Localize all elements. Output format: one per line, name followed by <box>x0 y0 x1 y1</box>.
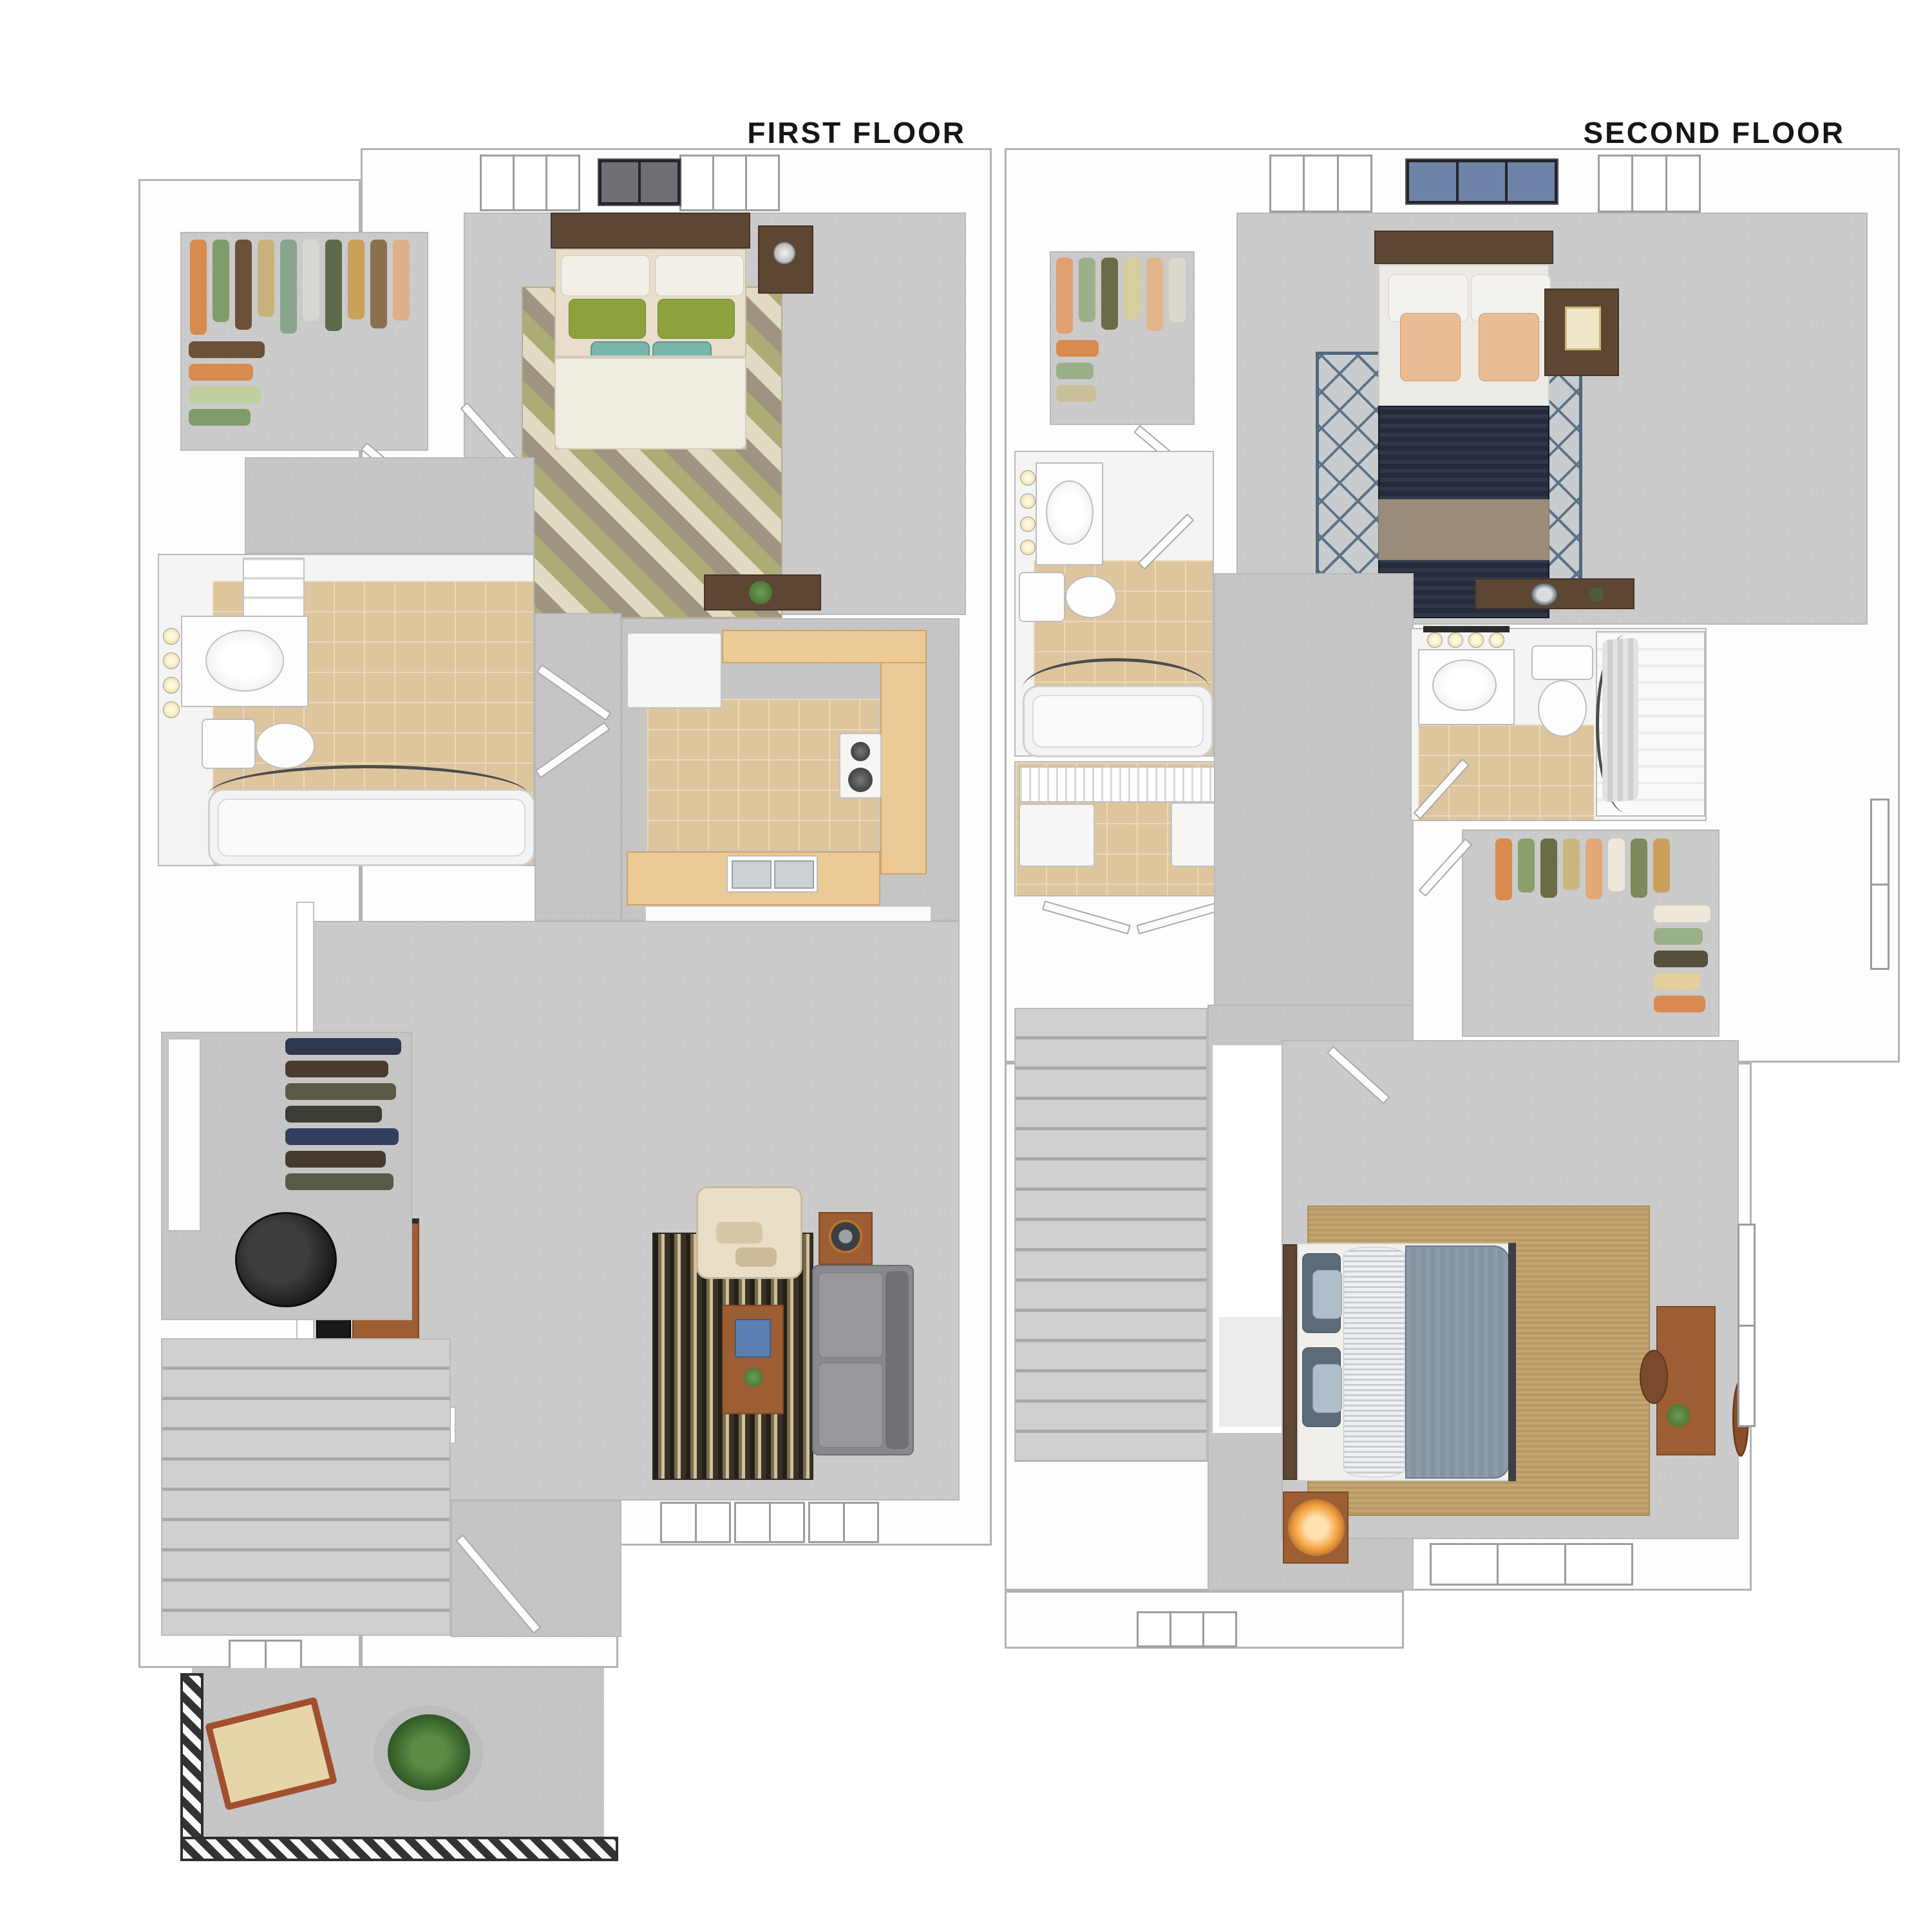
hanging-clothes-icon <box>1056 340 1099 402</box>
staircase <box>161 1338 451 1636</box>
vanity-light-bar <box>1423 626 1510 632</box>
green-pillow <box>658 299 735 339</box>
dresser <box>1475 578 1634 609</box>
vanity-light-icon <box>1020 540 1036 555</box>
window-icon <box>1430 1543 1633 1586</box>
toilet-bowl <box>1065 576 1117 618</box>
folded-sheet <box>1343 1247 1405 1477</box>
vanity-light-icon <box>1020 493 1036 509</box>
wall-art-icon <box>598 158 681 206</box>
washer-icon <box>1019 804 1095 867</box>
window-icon <box>1598 155 1701 213</box>
bed-headboard <box>551 213 750 249</box>
range-stove-icon <box>839 733 882 799</box>
window-icon <box>1738 1224 1756 1427</box>
sink-counter <box>726 855 818 893</box>
vanity-light-icon <box>1489 632 1504 648</box>
vanity-light-icon <box>1427 632 1443 648</box>
pillow <box>561 255 650 296</box>
lamp-icon <box>773 242 795 264</box>
toilet-tank <box>1531 645 1593 680</box>
bathtub <box>208 789 535 866</box>
nightstand <box>1544 289 1619 376</box>
peach-pillow <box>1479 313 1539 381</box>
window-icon <box>808 1502 879 1543</box>
coffee-table <box>722 1305 784 1414</box>
balcony-railing-left <box>180 1673 204 1861</box>
toilet-bowl <box>1538 680 1587 737</box>
bed-duvet <box>554 355 746 450</box>
window-icon <box>480 155 580 211</box>
side-table <box>819 1212 873 1265</box>
bathtub <box>1023 685 1213 757</box>
window-icon <box>1870 799 1889 970</box>
balcony-railing-bottom <box>180 1837 618 1861</box>
tan-blanket <box>1378 499 1549 560</box>
second-floor-plan <box>1005 148 1900 1649</box>
balcony <box>180 1668 618 1868</box>
floor-plan-canvas: FIRST FLOOR SECOND FLOOR <box>0 0 1932 1932</box>
counter-right <box>880 662 927 875</box>
vanity-light-icon <box>1020 516 1036 532</box>
vanity-light-icon <box>1468 632 1484 648</box>
window-icon <box>660 1502 731 1543</box>
toilet-tank <box>202 719 256 769</box>
hanging-clothes-icon <box>189 341 265 426</box>
green-pillow <box>569 299 646 339</box>
wall-art-icon <box>1405 158 1558 205</box>
bathroom-tile-floor <box>1418 724 1594 820</box>
slate-duvet <box>1405 1245 1510 1479</box>
plant-icon <box>749 581 772 604</box>
hanging-clothes-icon <box>1056 258 1186 334</box>
hallway-upper <box>245 457 535 554</box>
staircase-down <box>1014 1008 1207 1462</box>
vanity-light-icon <box>163 701 180 718</box>
vanity-light-icon <box>1020 470 1036 486</box>
vanity-light-icon <box>163 652 180 669</box>
first-floor-label: FIRST FLOOR <box>670 118 966 147</box>
window-icon <box>679 155 780 211</box>
potted-plant-icon <box>388 1714 470 1790</box>
peach-pillow <box>1400 313 1461 381</box>
bed-headboard <box>1374 231 1553 264</box>
hanging-clothes-icon <box>1495 838 1670 900</box>
window-icon <box>229 1640 302 1671</box>
sink-icon <box>1046 480 1094 545</box>
light-blue-pillow <box>1312 1270 1342 1319</box>
window-icon <box>1137 1611 1237 1647</box>
window-icon <box>1269 155 1372 213</box>
desk-chair <box>1640 1350 1668 1404</box>
shower-curtain <box>1602 638 1638 802</box>
bed-headboard <box>1283 1244 1297 1480</box>
sink-icon <box>205 630 284 692</box>
upper-cabinets <box>722 630 927 663</box>
water-heater-icon <box>235 1212 337 1307</box>
first-floor-plan <box>138 148 992 1668</box>
light-blue-pillow <box>1312 1364 1342 1413</box>
vanity-light-icon <box>163 628 180 645</box>
entry <box>451 1501 621 1637</box>
window-icon <box>734 1502 805 1543</box>
toilet-tank <box>1019 572 1065 622</box>
second-floor-label: SECOND FLOOR <box>1546 118 1845 147</box>
hanging-clothes-icon <box>1654 905 1710 1012</box>
sink-icon <box>1432 659 1497 711</box>
hallway-second-floor <box>1214 573 1414 1063</box>
hanging-clothes-icon <box>285 1038 401 1190</box>
hanging-clothes-icon <box>190 240 410 335</box>
vanity-light-icon <box>1448 632 1463 648</box>
sofa <box>812 1265 914 1455</box>
pillow <box>655 255 744 296</box>
toilet-bowl <box>256 723 315 769</box>
refrigerator-icon <box>627 632 722 708</box>
lit-lamp-icon <box>1288 1499 1345 1556</box>
bed-foot-rail <box>1508 1243 1516 1481</box>
armchair <box>696 1186 802 1279</box>
closet-shelf <box>167 1038 201 1231</box>
vanity-light-icon <box>163 677 180 694</box>
